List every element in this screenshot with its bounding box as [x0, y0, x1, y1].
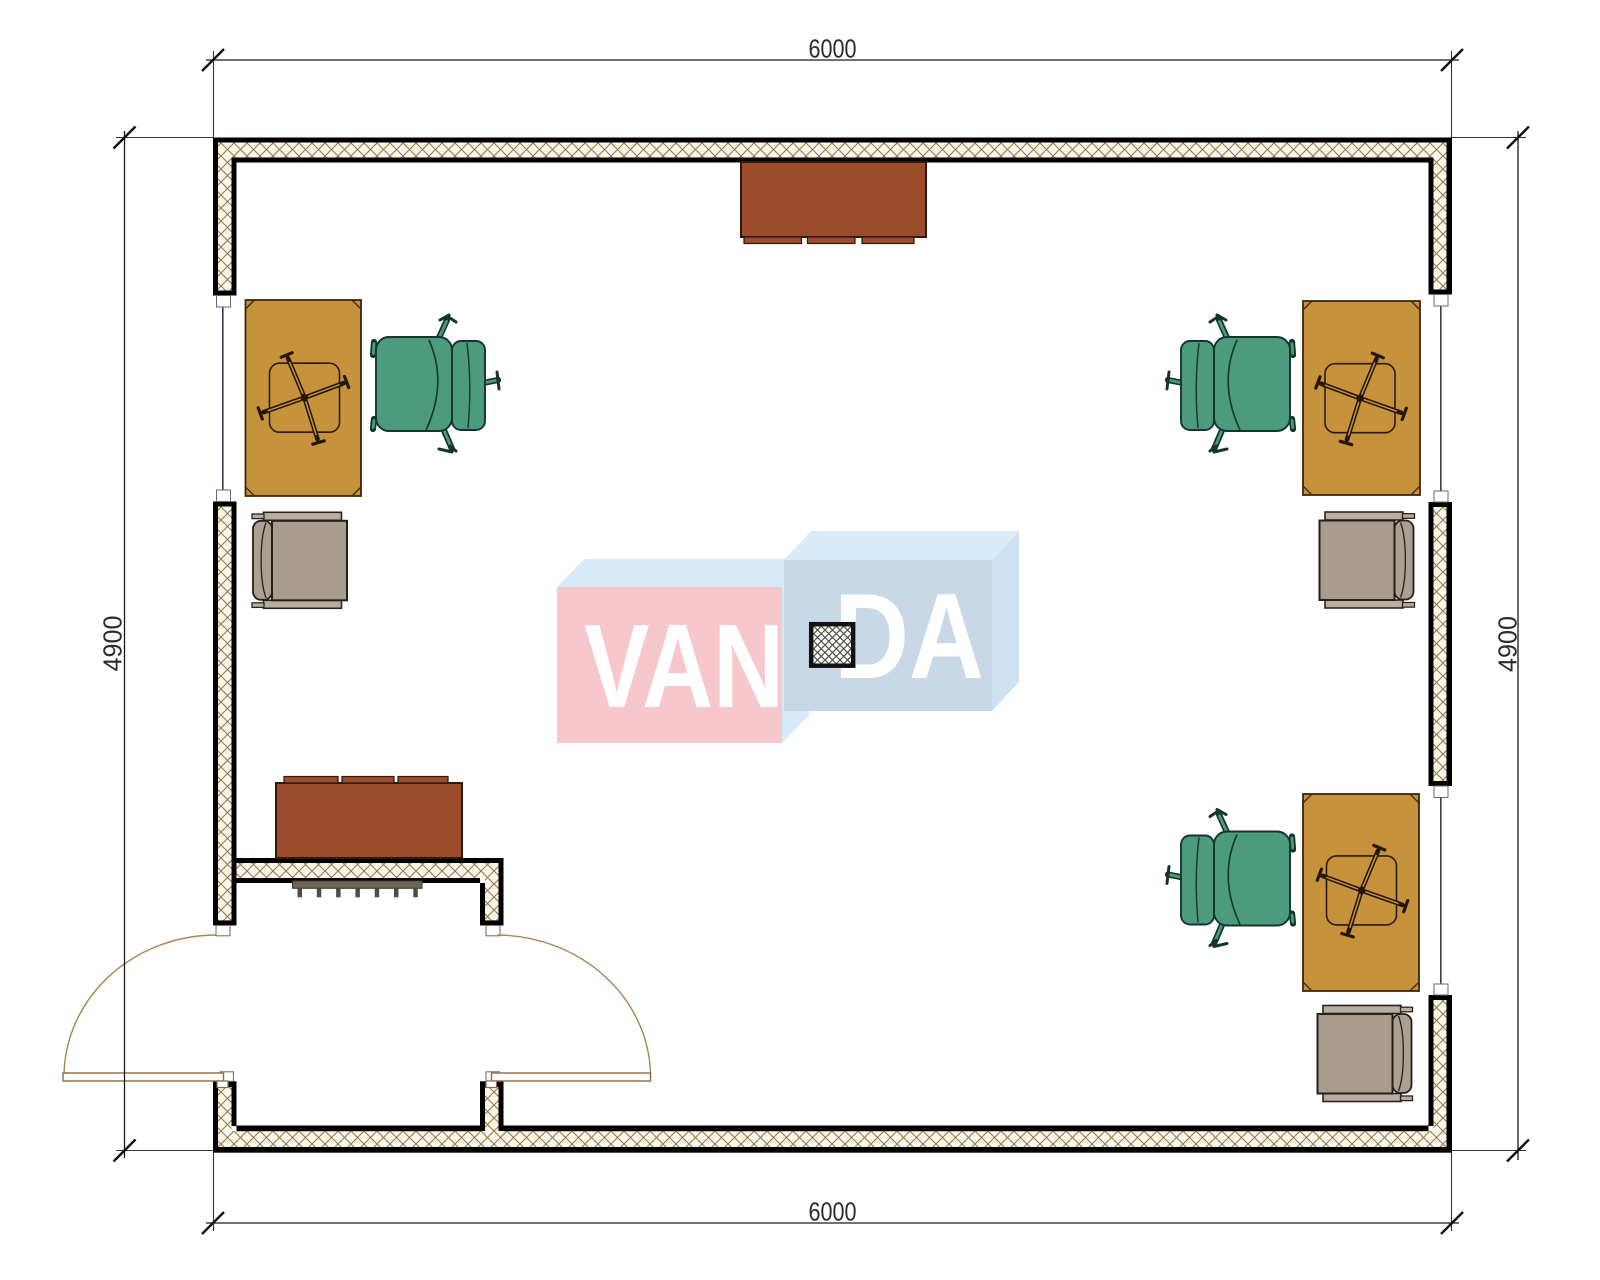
svg-text:6000: 6000 [809, 1197, 857, 1227]
svg-text:DA: DA [834, 568, 984, 704]
svg-text:6000: 6000 [809, 34, 857, 64]
svg-text:VAN: VAN [584, 600, 784, 733]
svg-text:4900: 4900 [98, 616, 128, 672]
svg-text:4900: 4900 [1493, 616, 1523, 672]
